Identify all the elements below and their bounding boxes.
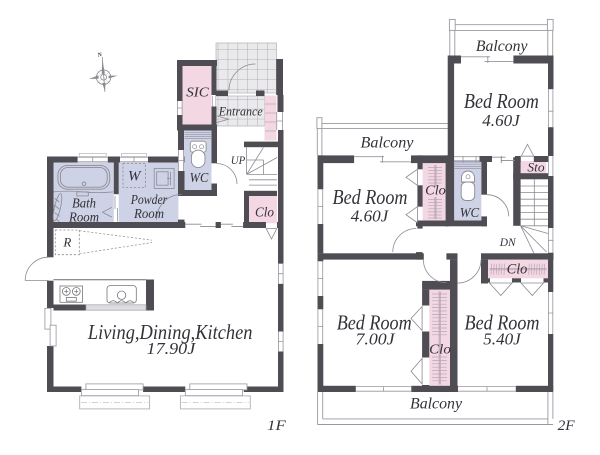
- svg-text:17.90J: 17.90J: [147, 339, 197, 358]
- svg-text:1F: 1F: [267, 418, 287, 434]
- svg-text:Bath: Bath: [72, 195, 96, 210]
- svg-text:Balcony: Balcony: [476, 38, 528, 55]
- svg-text:4.60J: 4.60J: [351, 207, 390, 226]
- svg-text:5.40J: 5.40J: [483, 330, 522, 349]
- svg-text:Entrance: Entrance: [218, 105, 264, 119]
- svg-text:DN: DN: [499, 235, 517, 249]
- svg-text:Clo: Clo: [429, 343, 451, 358]
- svg-text:Sto: Sto: [527, 159, 545, 174]
- svg-text:Clo: Clo: [425, 182, 446, 197]
- svg-text:WC: WC: [190, 170, 210, 185]
- svg-text:Balcony: Balcony: [361, 135, 414, 152]
- svg-text:SIC: SIC: [186, 86, 209, 101]
- svg-text:Balcony: Balcony: [410, 396, 462, 413]
- svg-text:UP: UP: [231, 153, 246, 167]
- svg-text:Bed Room: Bed Room: [464, 89, 539, 113]
- svg-text:Room: Room: [68, 209, 99, 224]
- svg-text:2F: 2F: [558, 418, 576, 434]
- svg-text:W: W: [128, 168, 142, 184]
- svg-text:Clo: Clo: [507, 262, 528, 278]
- svg-text:Clo: Clo: [255, 206, 274, 221]
- svg-text:WC: WC: [460, 206, 480, 221]
- svg-text:7.00J: 7.00J: [356, 330, 397, 349]
- svg-text:Powder: Powder: [130, 192, 168, 207]
- svg-text:Room: Room: [133, 206, 164, 221]
- svg-text:4.60J: 4.60J: [482, 111, 521, 130]
- svg-text:Bed Room: Bed Room: [333, 185, 408, 209]
- svg-text:R: R: [62, 235, 71, 250]
